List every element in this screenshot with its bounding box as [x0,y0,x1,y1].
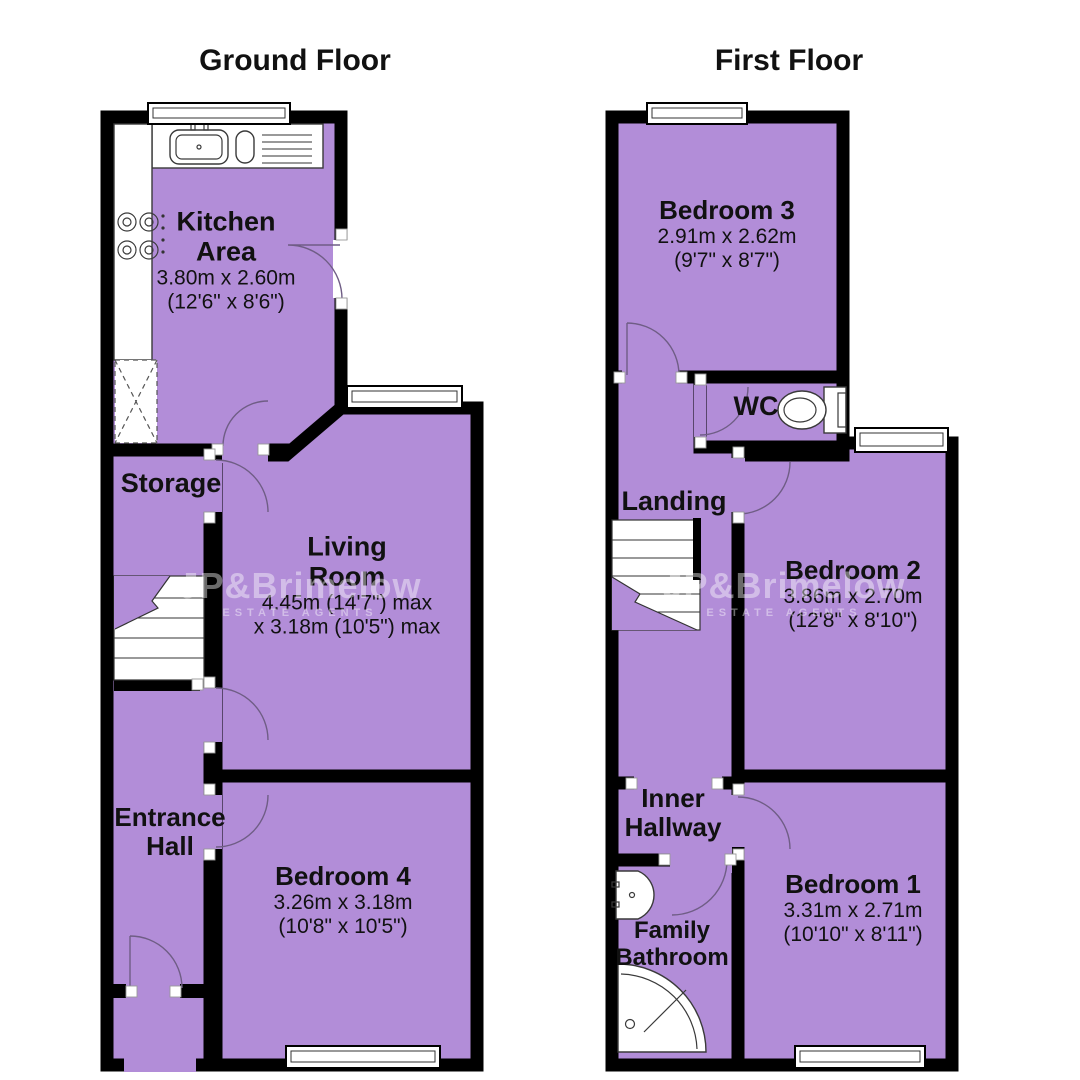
wc-label: WC [734,391,779,421]
living-room-window [347,386,462,408]
family-bathroom-label: Family Bathroom [615,918,728,972]
bedroom4-window [286,1046,440,1068]
floorplan-page: Ground Floor First Floor Kitchen Area 3.… [0,0,1080,1080]
bedroom3-window [647,103,747,124]
entrance-hall-label: Entrance Hall [114,803,225,861]
front-door-stub-right [180,984,210,998]
toilet-icon [778,387,846,433]
stairs-first [612,518,701,630]
front-door-stub-left [107,984,126,998]
kitchen-sink-icon [152,118,323,169]
first-floor-title: First Floor [715,44,863,78]
bedroom2-window [855,428,948,452]
bedroom4-label: Bedroom 4 3.26m x 3.18m (10'8" x 10'5") [274,862,413,938]
living-room-label: Living Room 4.45m (14'7") max x 3.18m (1… [254,531,441,639]
hall-storage-column [107,450,210,1065]
appliance-space-icon [115,360,157,443]
kitchen-window [148,103,290,124]
bedroom1-window [795,1046,925,1068]
bedroom2-label: Bedroom 2 3.86m x 2.70m (12'8" x 8'10") [784,556,923,632]
stairs-ground [114,576,204,680]
ground-floor-title: Ground Floor [199,44,391,78]
inner-hallway-label: Inner Hallway [625,784,722,842]
bedroom3-label: Bedroom 3 2.91m x 2.62m (9'7" x 8'7") [658,196,797,272]
kitchen-label: Kitchen Area 3.80m x 2.60m (12'6" x 8'6"… [157,206,296,314]
storage-label: Storage [121,468,222,498]
bedroom1-label: Bedroom 1 3.31m x 2.71m (10'10" x 8'11") [783,870,922,946]
landing-label: Landing [622,486,727,516]
bathroom-sink-icon [612,871,654,919]
